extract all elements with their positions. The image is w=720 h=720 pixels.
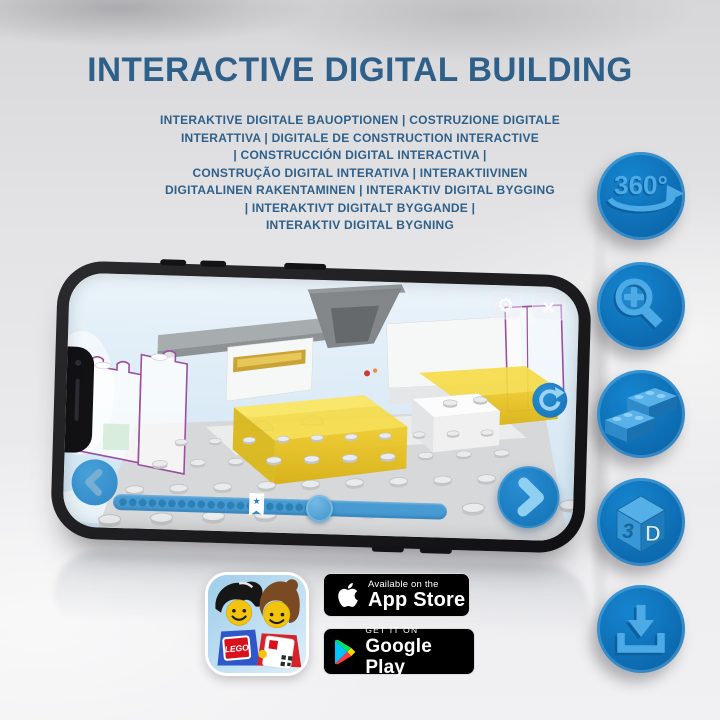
feature-brick-badge [597, 370, 685, 458]
app-store-badge[interactable]: Available on the App Store [323, 573, 470, 617]
settings-button[interactable]: ⚙ [489, 292, 523, 320]
subtitle-line: INTERAKTIV DIGITAL BYGNING [70, 217, 650, 235]
phone-screen: ⚙ × [62, 272, 579, 541]
multilingual-subtitle: INTERAKTIVE DIGITALE BAUOPTIONEN | COSTR… [70, 112, 650, 235]
chevron-left-icon [71, 459, 118, 506]
svg-text:360°: 360° [614, 170, 668, 200]
lego-app-icon[interactable]: LEGO [205, 572, 309, 676]
google-play-tagline: GET IT ON [365, 625, 474, 636]
feature-zoom-badge [597, 262, 685, 350]
smartphone: ⚙ × [50, 260, 592, 554]
svg-text:3: 3 [622, 520, 634, 543]
progress-handle[interactable] [306, 494, 334, 522]
svg-text:D: D [645, 521, 661, 546]
phone-notch [63, 346, 95, 453]
app-store-label: App Store [368, 590, 465, 611]
download-icon [597, 585, 685, 673]
google-play-icon [334, 639, 356, 665]
feature-3d-badge: 3 D [597, 478, 685, 566]
marketing-banner: INTERACTIVE DIGITAL BUILDING INTERAKTIVE… [0, 0, 720, 720]
google-play-label: Google Play [365, 636, 474, 678]
close-icon: × [542, 296, 556, 318]
feature-360-badge: 360° 360° [597, 152, 685, 240]
svg-text:LEGO: LEGO [224, 642, 249, 654]
zoom-in-icon [597, 262, 685, 350]
lego-brick-icon [597, 370, 685, 458]
volume-button [200, 260, 226, 267]
subtitle-line: | CONSTRUCCIÓN DIGITAL INTERACTIVA | [70, 147, 650, 165]
subtitle-line: CONSTRUÇÃO DIGITAL INTERATIVA | INTERAKT… [70, 165, 650, 183]
lego-minifigures-art: LEGO [208, 575, 306, 673]
subtitle-line: INTERAKTIVE DIGITALE BAUOPTIONEN | COSTR… [70, 112, 650, 130]
phone-reflection [53, 550, 589, 650]
chevron-right-icon [497, 465, 561, 529]
gear-icon: ⚙ [497, 296, 515, 315]
power-button [284, 263, 326, 270]
google-play-badge[interactable]: GET IT ON Google Play [323, 628, 475, 675]
page-title: INTERACTIVE DIGITAL BUILDING [7, 51, 713, 90]
bookmark-marker[interactable]: ★ [249, 493, 265, 516]
next-step-button[interactable] [497, 465, 561, 529]
previous-step-button[interactable] [71, 459, 118, 506]
subtitle-line: DIGITAALINEN RAKENTAMINEN | INTERAKTIV D… [70, 182, 650, 200]
side-button [420, 547, 452, 554]
speaker-slit [74, 379, 79, 421]
3d-cube-icon: 3 D [597, 478, 685, 566]
reset-view-button[interactable] [532, 382, 568, 418]
360-rotation-icon: 360° 360° [597, 152, 685, 240]
volume-button [160, 259, 186, 266]
progress-steps-dots [118, 497, 320, 513]
subtitle-line: INTERATTIVA | DIGITALE DE CONSTRUCTION I… [70, 130, 650, 148]
front-camera [75, 360, 81, 366]
refresh-icon [532, 382, 568, 418]
apple-icon [335, 581, 359, 609]
subtitle-line: | INTERAKTIVT DIGITALT BYGGANDE | [70, 200, 650, 218]
feature-download-badge [597, 585, 685, 673]
close-button[interactable]: × [532, 293, 566, 321]
side-button [372, 546, 404, 553]
star-icon: ★ [252, 496, 260, 506]
